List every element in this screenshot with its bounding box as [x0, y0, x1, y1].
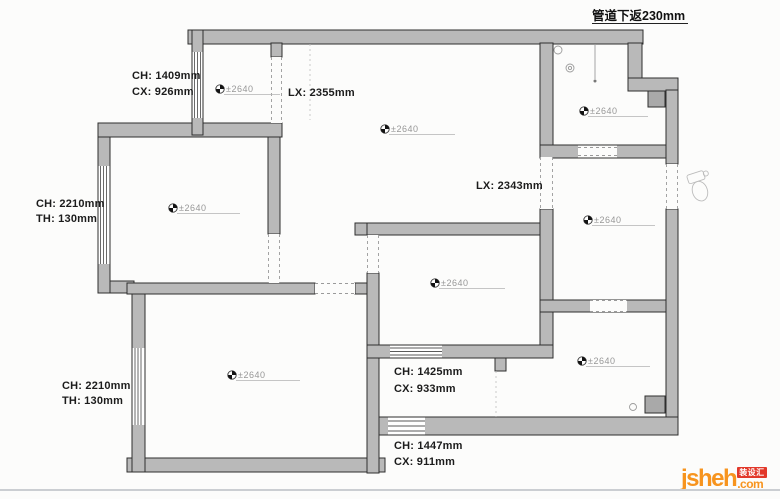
dim-left-lower-th: TH: 130mm	[62, 395, 123, 407]
window	[390, 346, 442, 358]
pipe-note: 管道下返230mm	[592, 8, 688, 24]
level-value: ±2640	[238, 370, 265, 380]
dim-corridor-lx: LX: 2343mm	[476, 180, 543, 192]
benchmark-icon	[216, 85, 224, 93]
wall-segment	[188, 30, 643, 44]
wall-segment	[666, 90, 678, 164]
door-opening	[271, 57, 282, 123]
wall-opening	[578, 146, 617, 158]
wall-segment	[540, 43, 553, 157]
drain-circle	[630, 404, 637, 411]
wall-segment	[271, 43, 282, 57]
dim-left-upper-ch: CH: 2210mm	[36, 198, 105, 210]
level-mark: ±2640	[580, 106, 648, 117]
door-opening	[268, 234, 280, 283]
wall-segment	[127, 283, 315, 294]
door-opening	[367, 235, 379, 273]
floor-plan-drawing: ±2640 ±2640 ±2640 ±2640 ±2640 ±2640	[0, 0, 780, 499]
level-value: ±2640	[588, 356, 615, 366]
dim-entry-cx: CX: 926mm	[132, 86, 194, 98]
dim-entry-ch: CH: 1409mm	[132, 70, 201, 82]
benchmark-icon	[228, 371, 236, 379]
wall-segment	[367, 223, 540, 235]
site-logo: jsheh 装设汇 .com	[681, 464, 776, 497]
wall-opening	[590, 300, 627, 312]
benchmark-icon	[431, 279, 439, 287]
pipe-circle	[554, 46, 562, 54]
wall-segment	[98, 123, 282, 137]
dim-bath-lower-ch: CH: 1447mm	[394, 440, 463, 452]
dim-bath-upper-ch: CH: 1425mm	[394, 366, 463, 378]
toilet-sketch	[686, 169, 715, 203]
door-opening	[315, 283, 355, 294]
dim-left-upper-th: TH: 130mm	[36, 213, 97, 225]
wall-segment	[666, 209, 678, 435]
benchmark-icon	[578, 357, 586, 365]
level-mark: ±2640	[216, 84, 280, 95]
level-mark: ±2640	[431, 278, 505, 289]
dim-bath-upper-cx: CX: 933mm	[394, 383, 456, 395]
wall-segment	[628, 78, 678, 91]
wall-segment	[268, 137, 280, 234]
level-value: ±2640	[226, 84, 253, 94]
fixtures	[554, 44, 716, 411]
wall-segment	[367, 273, 379, 473]
wall-segment	[495, 358, 506, 371]
plumbing-dot	[594, 80, 597, 83]
wall-opening	[666, 164, 678, 209]
level-value: ±2640	[594, 215, 621, 225]
level-value: ±2640	[441, 278, 468, 288]
dim-hall-lx: LX: 2355mm	[288, 87, 355, 99]
level-value: ±2640	[179, 203, 206, 213]
benchmark-icon	[169, 204, 177, 212]
benchmark-icon	[381, 125, 389, 133]
dim-bath-lower-cx: CX: 911mm	[394, 456, 455, 468]
benchmark-icon	[580, 107, 588, 115]
column	[648, 91, 665, 107]
wall-segment	[127, 458, 385, 472]
wall-segment	[540, 209, 553, 358]
level-mark: ±2640	[578, 356, 650, 367]
column	[645, 396, 665, 413]
wall-segment	[628, 43, 642, 79]
dim-left-lower-ch: CH: 2210mm	[62, 380, 131, 392]
level-mark: ±2640	[228, 370, 300, 381]
window	[388, 418, 425, 435]
level-value: ±2640	[391, 124, 418, 134]
floor-plan-page: ±2640 ±2640 ±2640 ±2640 ±2640 ±2640	[0, 0, 780, 499]
level-value: ±2640	[590, 106, 617, 116]
window	[193, 52, 203, 118]
benchmark-icon	[584, 216, 592, 224]
drain-circle	[566, 64, 574, 72]
level-mark: ±2640	[381, 124, 455, 135]
drain-circle	[568, 66, 571, 69]
window	[133, 348, 145, 425]
bottom-divider	[0, 489, 780, 491]
pipe-note-text: 管道下返230mm	[592, 8, 685, 23]
window	[99, 166, 110, 264]
level-mark: ±2640	[169, 203, 240, 214]
level-mark: ±2640	[584, 215, 655, 226]
